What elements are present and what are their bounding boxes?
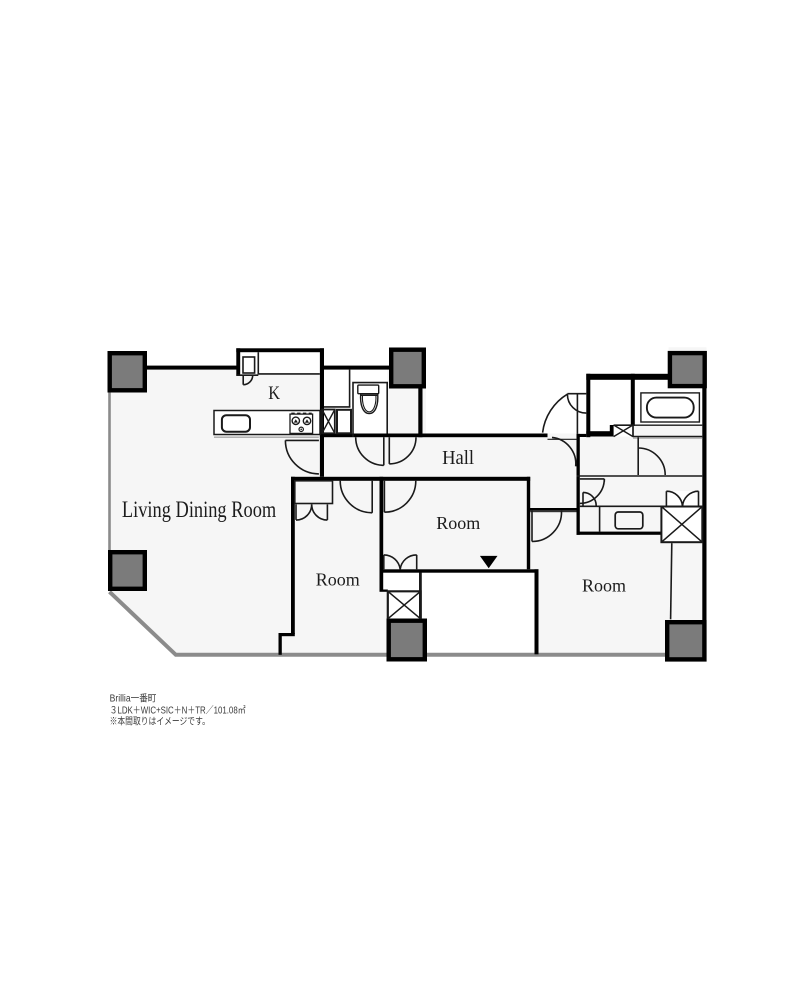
svg-text:Hall: Hall [442,447,474,469]
svg-text:３LDK＋WIC+SIC＋N＋TR／101.08㎡: ３LDK＋WIC+SIC＋N＋TR／101.08㎡ [110,705,246,717]
svg-text:Brillia一番町: Brillia一番町 [110,692,157,704]
svg-text:Living Dining Room: Living Dining Room [122,497,276,522]
svg-text:※本間取りはイメージです。: ※本間取りはイメージです。 [110,715,210,728]
svg-text:Room: Room [582,575,626,595]
svg-text:Room: Room [436,513,480,533]
svg-text:K: K [268,383,280,404]
svg-text:Room: Room [316,569,360,589]
